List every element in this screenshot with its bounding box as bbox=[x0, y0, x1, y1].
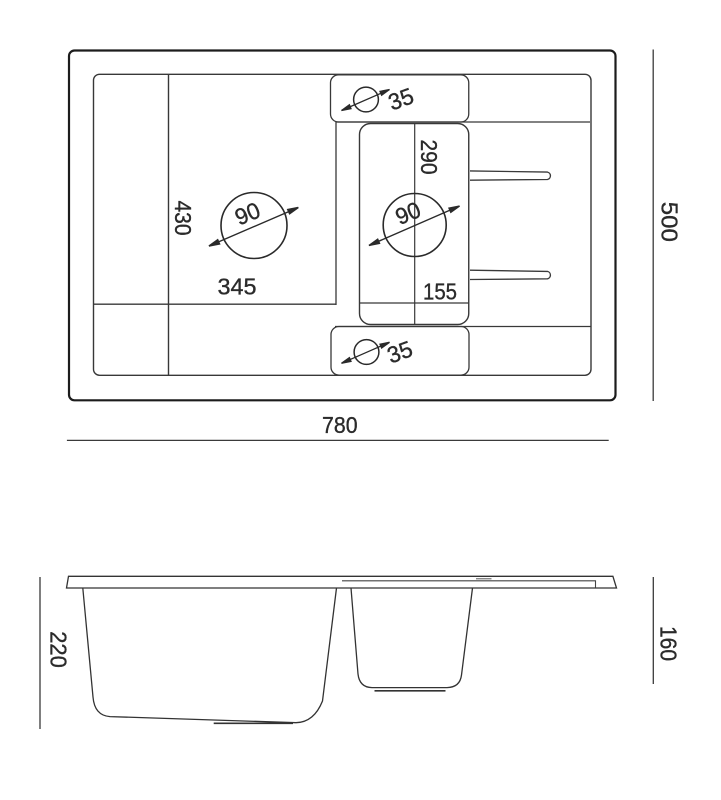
svg-text:430: 430 bbox=[170, 201, 196, 236]
svg-text:35: 35 bbox=[384, 335, 416, 368]
svg-text:90: 90 bbox=[231, 197, 264, 231]
svg-text:90: 90 bbox=[391, 196, 424, 230]
svg-text:780: 780 bbox=[322, 412, 358, 438]
svg-text:220: 220 bbox=[46, 631, 72, 668]
svg-text:345: 345 bbox=[218, 274, 257, 300]
svg-text:35: 35 bbox=[385, 82, 417, 115]
svg-text:160: 160 bbox=[656, 626, 682, 661]
svg-text:500: 500 bbox=[657, 202, 683, 242]
svg-text:290: 290 bbox=[416, 140, 442, 175]
svg-text:155: 155 bbox=[423, 279, 457, 305]
